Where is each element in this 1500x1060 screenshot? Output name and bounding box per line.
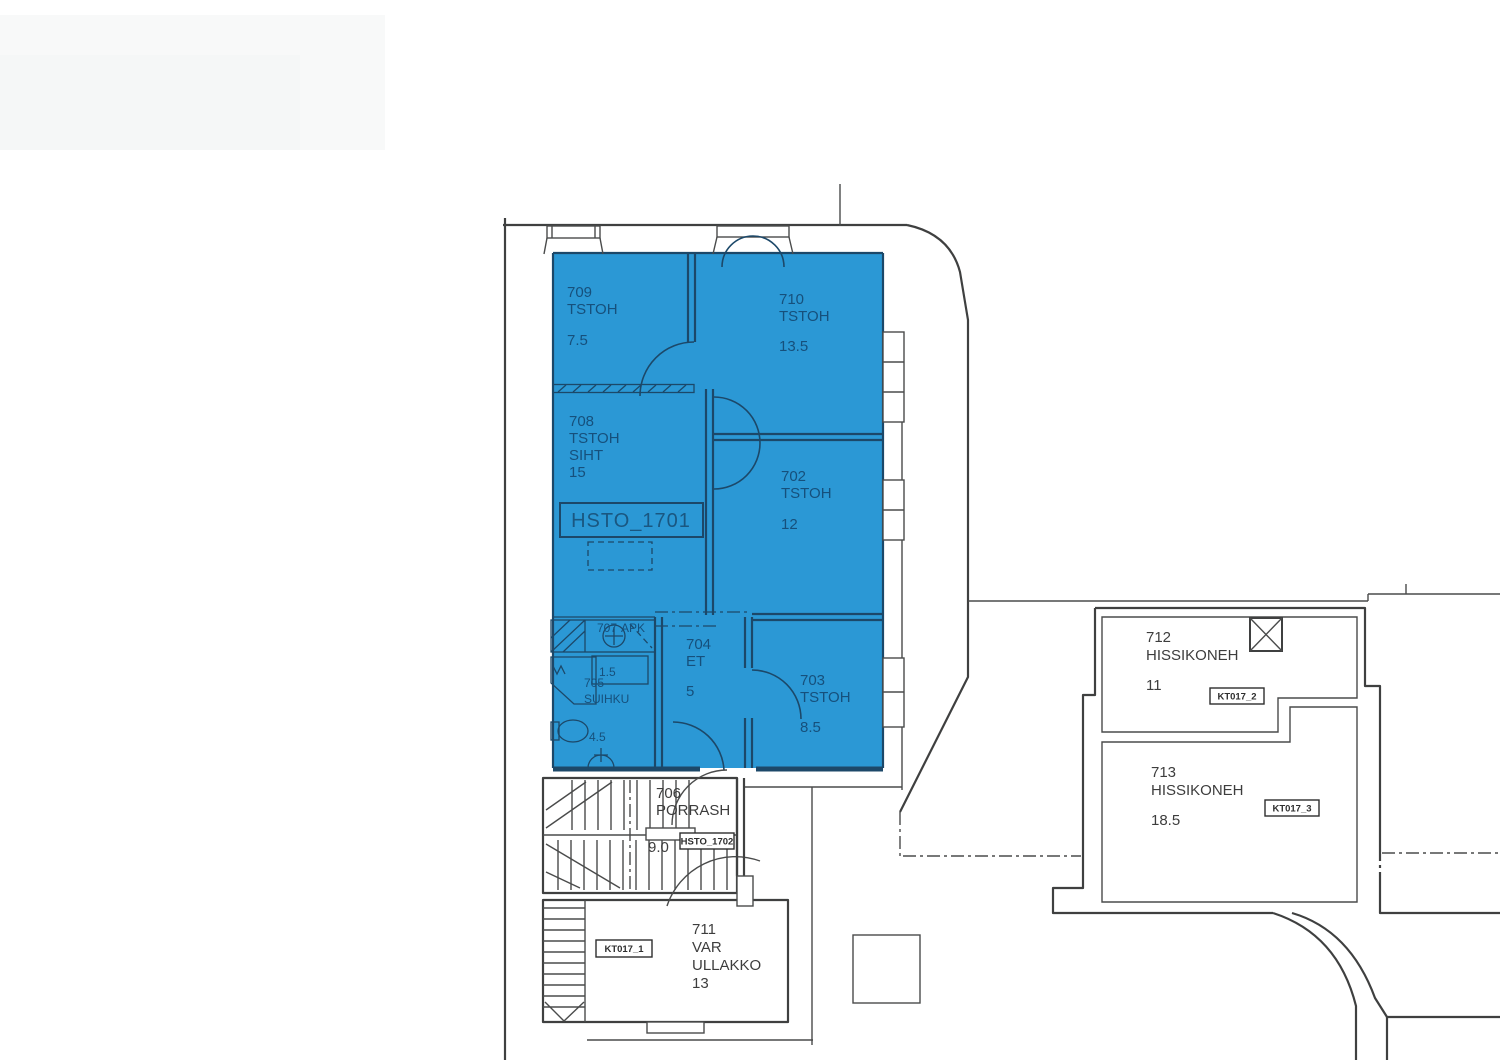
badge-kt017-3: KT017_3 <box>1265 800 1319 816</box>
room-type: TSTOH <box>781 485 832 502</box>
room-number: 707 <box>597 621 617 635</box>
room-area: 9.0 <box>648 839 669 856</box>
room-type: APK <box>621 621 645 635</box>
room-number: 709 <box>567 284 592 301</box>
room-extra: ULLAKKO <box>692 957 761 974</box>
room-area: 4.5 <box>589 730 606 744</box>
room-713-label: 713 HISSIKONEH 18.5 <box>1151 764 1244 829</box>
room-type: TSTOH <box>779 308 830 325</box>
room-area: 13.5 <box>779 338 808 355</box>
room-type: TSTOH <box>800 689 851 706</box>
room-area: 13 <box>692 975 709 992</box>
room-number: 711 <box>692 921 716 938</box>
badge-kt017-1: KT017_1 <box>596 940 652 957</box>
room-area: 7.5 <box>567 332 588 349</box>
room-type: ET <box>686 653 705 670</box>
room-711-label: 711 VAR ULLAKKO 13 <box>692 921 761 992</box>
room-number: 704 <box>686 636 711 653</box>
svg-text:KT017_2: KT017_2 <box>1217 692 1256 703</box>
room-number: 705 <box>584 676 604 690</box>
unit-label: HSTO_1701 <box>571 510 691 532</box>
attic-hatch <box>647 1022 704 1033</box>
room-712-area <box>1102 617 1357 732</box>
room-area: 18.5 <box>1151 812 1180 829</box>
room-type: HISSIKONEH <box>1146 647 1239 664</box>
room-type: TSTOH <box>567 301 618 318</box>
room-number: 706 <box>656 785 681 802</box>
room-type: HISSIKONEH <box>1151 782 1244 799</box>
room-type: SUIHKU <box>584 692 629 706</box>
room-area: 11 <box>1146 677 1162 694</box>
window-bays <box>883 332 904 727</box>
badge-kt017-2: KT017_2 <box>1210 688 1264 704</box>
ladder-icon <box>543 900 585 1022</box>
room-area: 15 <box>569 464 586 481</box>
room-712-label: 712 HISSIKONEH 11 <box>1146 629 1239 694</box>
elevator-icon <box>1250 618 1282 651</box>
room-area: 12 <box>781 516 798 533</box>
room-number: 712 <box>1146 629 1171 646</box>
scan-smudge-2 <box>0 55 300 150</box>
room-number: 702 <box>781 468 806 485</box>
svg-text:KT017_3: KT017_3 <box>1272 804 1311 815</box>
svg-text:HSTO_1702: HSTO_1702 <box>681 837 734 848</box>
room-number: 713 <box>1151 764 1176 781</box>
badge-hsto-1702: HSTO_1702 <box>680 833 734 849</box>
svg-text:KT017_1: KT017_1 <box>604 944 644 955</box>
room-type: VAR <box>692 939 722 956</box>
room-area: 8.5 <box>800 719 821 736</box>
room-area: 5 <box>686 683 694 700</box>
room-extra: SIHT <box>569 447 603 464</box>
room-number: 703 <box>800 672 825 689</box>
room-type: TSTOH <box>569 430 620 447</box>
room-number: 710 <box>779 291 804 308</box>
room-type: PORRASH <box>656 802 730 819</box>
shaft-square <box>853 935 920 1003</box>
top-window <box>544 226 603 254</box>
room-number: 708 <box>569 413 594 430</box>
floor-plan: HSTO_1701 709 TSTOH 7.5 <box>0 0 1500 1060</box>
